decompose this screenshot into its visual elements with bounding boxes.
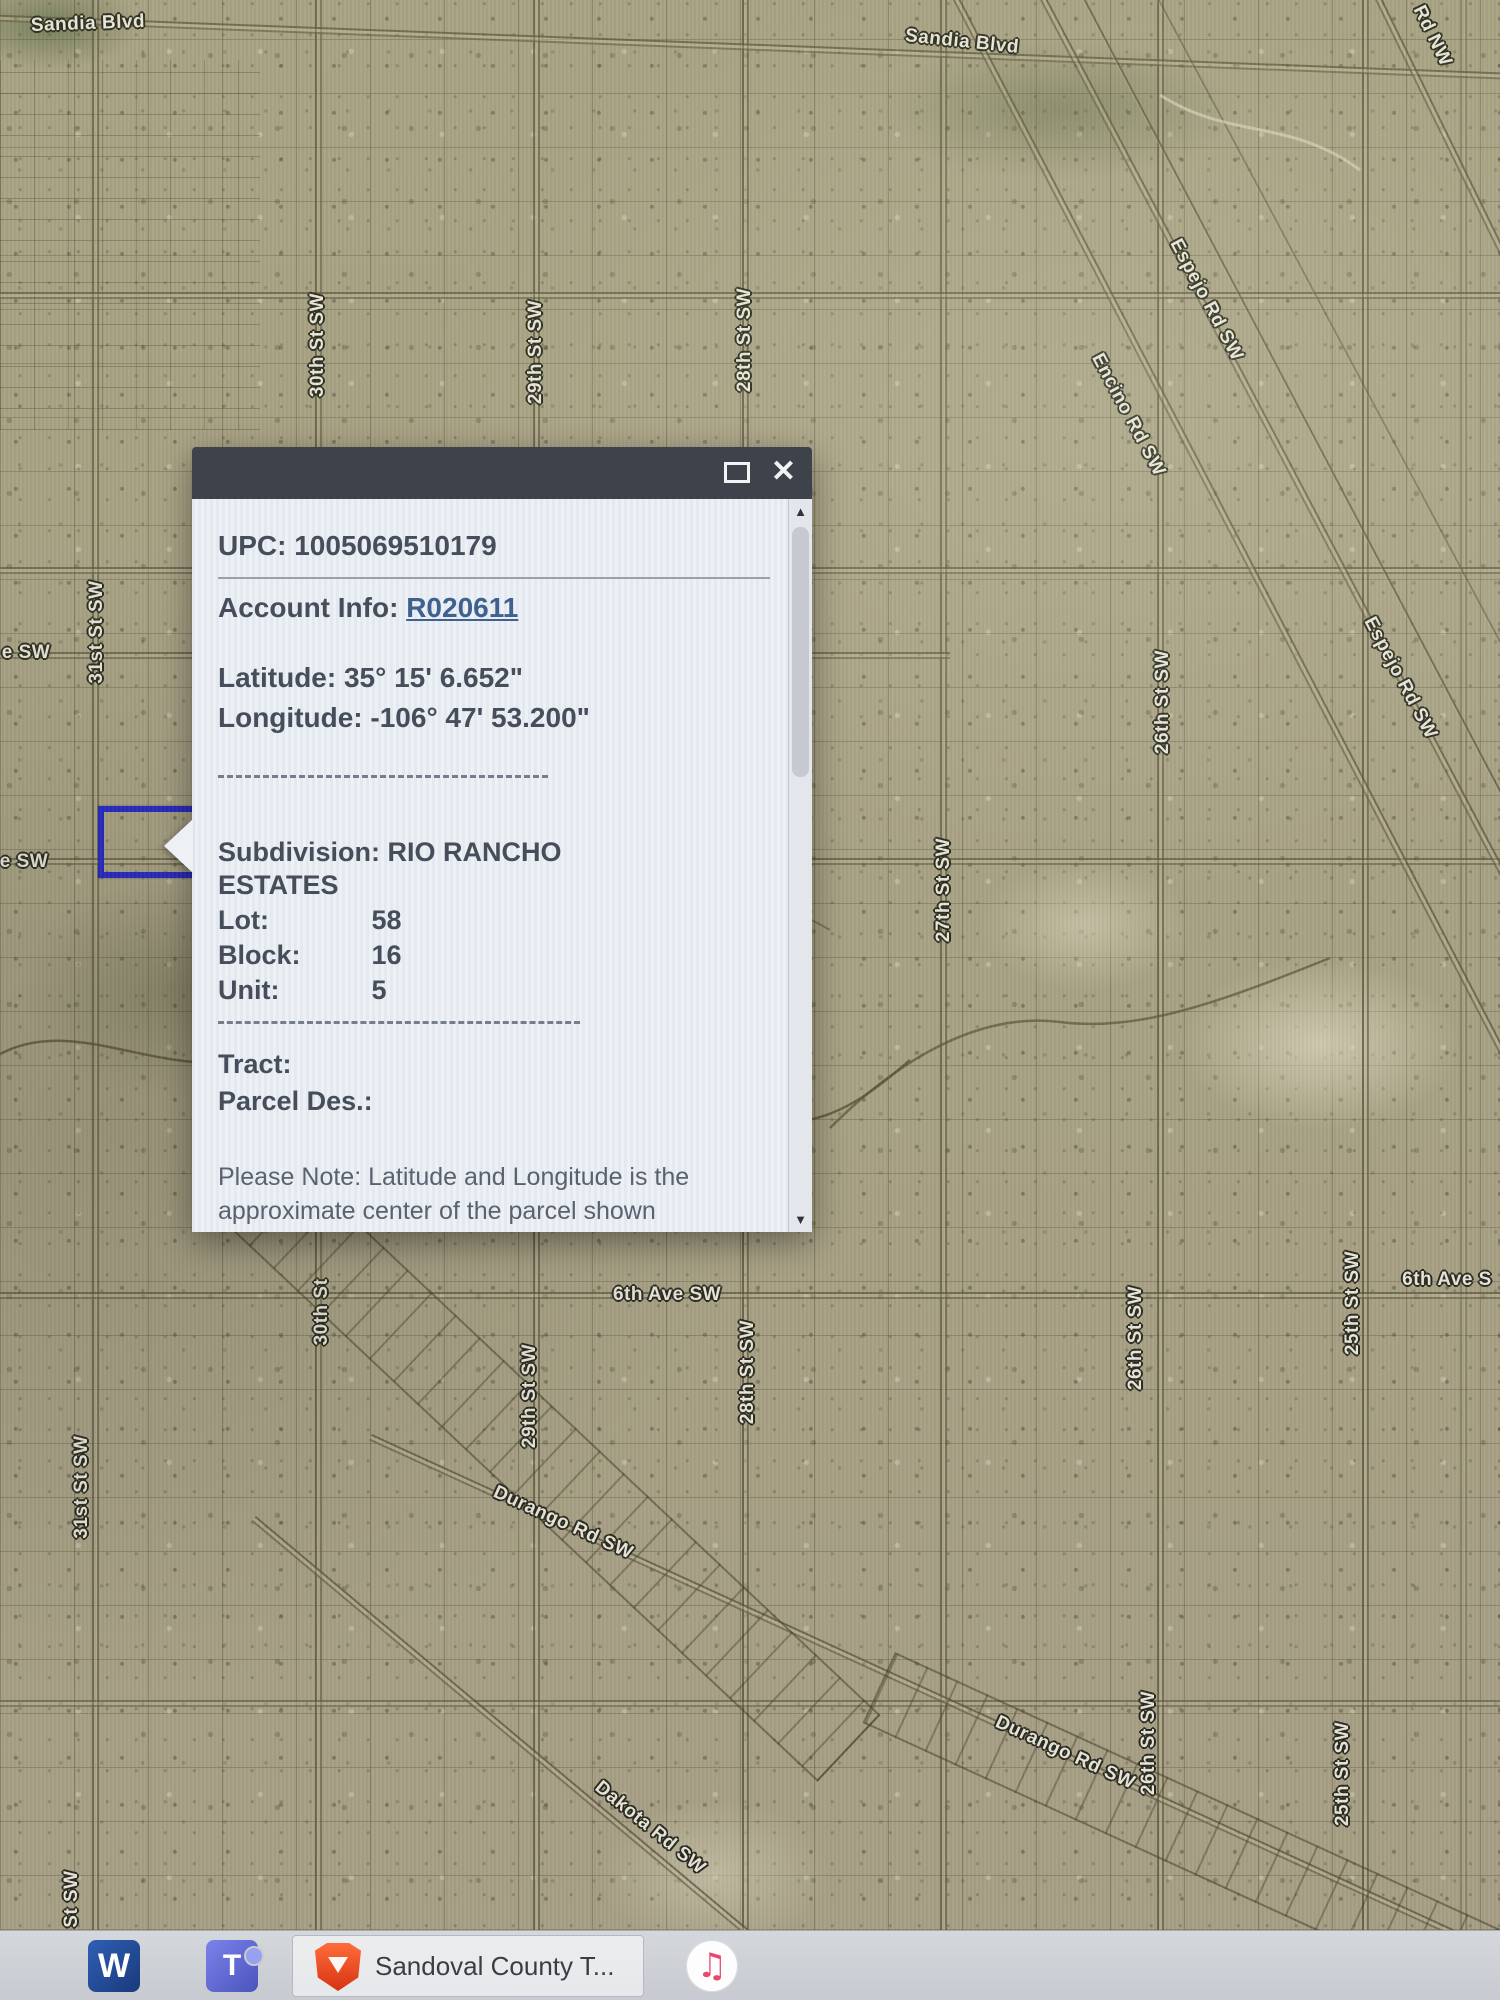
popup-content: UPC: 1005069510179 Account Info: R020611… (192, 499, 788, 1232)
street-label: 29th St SW (525, 300, 547, 404)
popup-scrollbar[interactable]: ▲ ▼ (788, 499, 812, 1232)
scroll-up-icon[interactable]: ▲ (789, 504, 812, 519)
taskbar: W T Sandoval County T... ♫ (0, 1930, 1500, 2000)
street-label: 6th Ave S (1402, 1269, 1492, 1291)
parcel-info-popup: ✕ UPC: 1005069510179 Account Info: R0206… (192, 447, 812, 1232)
dashed-divider (218, 1021, 580, 1024)
music-icon[interactable]: ♫ (686, 1940, 738, 1992)
popup-body: UPC: 1005069510179 Account Info: R020611… (192, 499, 812, 1232)
unit-value: 5 (372, 975, 387, 1005)
street-label: 26th St SW (1138, 1691, 1160, 1795)
unit-label: Unit: (218, 974, 364, 1007)
scroll-down-icon[interactable]: ▼ (789, 1212, 812, 1227)
teams-icon[interactable]: T (206, 1940, 258, 1992)
lot-value: 58 (372, 905, 402, 935)
word-icon[interactable]: W (88, 1940, 140, 1992)
street-label: Sandia Blvd (31, 11, 146, 37)
lot-row: Lot: 58 (218, 904, 776, 937)
street-label: 25th St SW (1332, 1722, 1354, 1826)
active-window-button[interactable]: Sandoval County T... (292, 1935, 644, 1997)
street-label: 28th St SW (737, 1320, 759, 1424)
street-label: 29th St SW (519, 1344, 541, 1448)
parcel-des-label: Parcel Des.: (218, 1085, 776, 1118)
street-label: 31st St SW (86, 580, 108, 683)
street-label: 30th St SW (307, 293, 329, 397)
popup-titlebar[interactable]: ✕ (192, 447, 812, 499)
dashed-divider (218, 775, 548, 778)
tract-label: Tract: (218, 1048, 776, 1081)
street-label: 27th St SW (933, 838, 955, 942)
street-label: 26th St SW (1152, 650, 1174, 754)
street-label: 28th St SW (734, 288, 756, 392)
block-row: Block: 16 (218, 939, 776, 972)
longitude-value: Longitude: -106° 47' 53.200" (218, 701, 776, 735)
street-label: e SW (0, 851, 48, 873)
street-label: 6th Ave SW (613, 1284, 721, 1306)
active-window-title: Sandoval County T... (375, 1951, 614, 1982)
upc-value: UPC: 1005069510179 (218, 529, 776, 563)
screen: Sandia Blvd Sandia Blvd Rd NW 30th St SW… (0, 0, 1500, 2000)
scrollbar-thumb[interactable] (792, 527, 809, 777)
account-info-line: Account Info: R020611 (218, 591, 776, 625)
street-label: e SW (2, 642, 50, 664)
close-icon[interactable]: ✕ (771, 454, 796, 490)
account-info-label: Account Info: (218, 592, 398, 623)
lot-label: Lot: (218, 904, 364, 937)
street-label: 25th St SW (1342, 1251, 1364, 1355)
divider (218, 577, 770, 579)
street-label: 26th St SW (1125, 1286, 1147, 1390)
street-label: 31st St SW (71, 1435, 93, 1538)
unit-row: Unit: 5 (218, 974, 776, 1007)
latitude-value: Latitude: 35° 15' 6.652" (218, 661, 776, 695)
brave-browser-icon[interactable] (315, 1943, 361, 1991)
block-label: Block: (218, 939, 364, 972)
account-info-link[interactable]: R020611 (406, 592, 518, 623)
street-label: 30th St (311, 1279, 333, 1346)
block-value: 16 (372, 940, 402, 970)
maximize-icon[interactable] (724, 462, 750, 483)
popup-note: Please Note: Latitude and Longitude is t… (218, 1160, 743, 1228)
popup-callout-pointer (164, 819, 193, 873)
subdivision-value: Subdivision: RIO RANCHO ESTATES (218, 836, 688, 902)
